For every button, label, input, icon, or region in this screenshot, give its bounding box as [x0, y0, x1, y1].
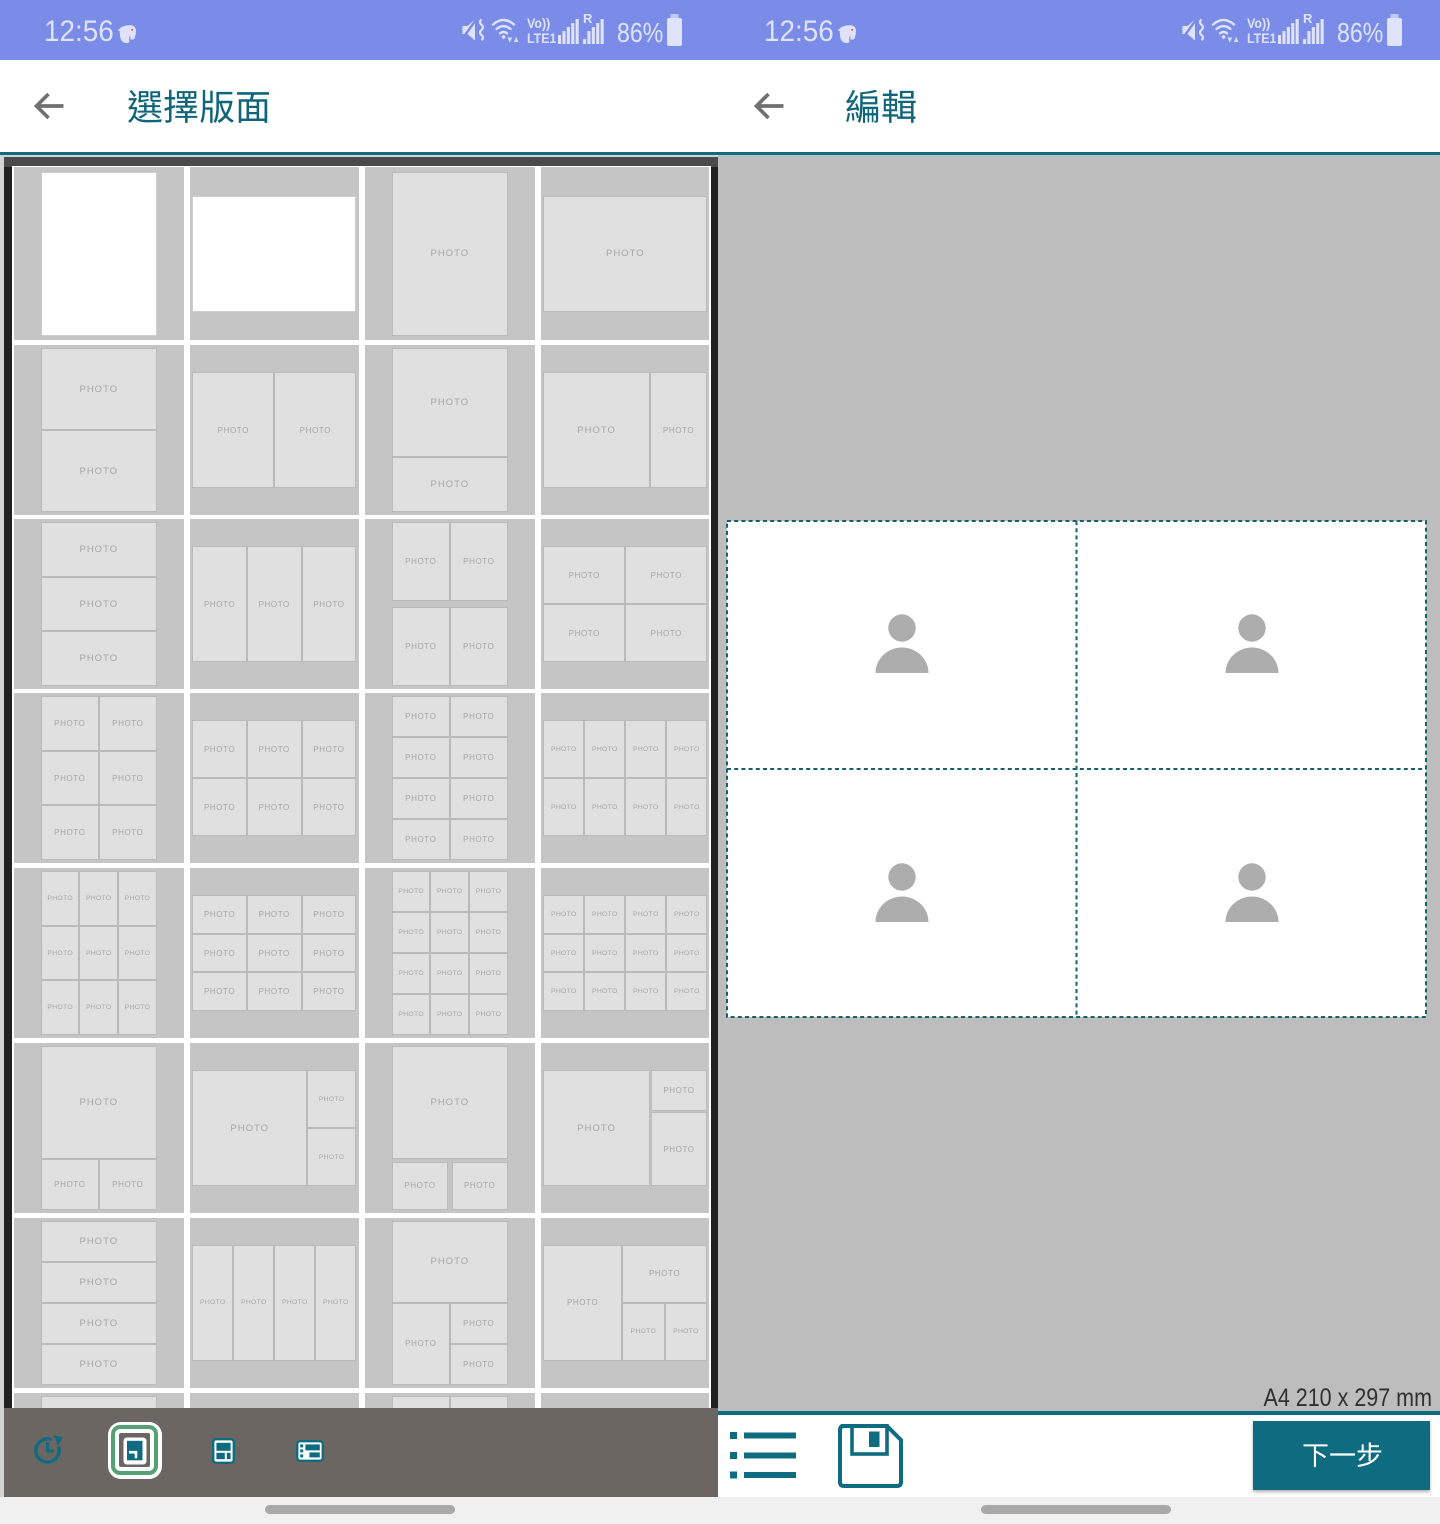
svg-text:R: R: [1303, 14, 1313, 26]
svg-text:R: R: [583, 14, 593, 26]
